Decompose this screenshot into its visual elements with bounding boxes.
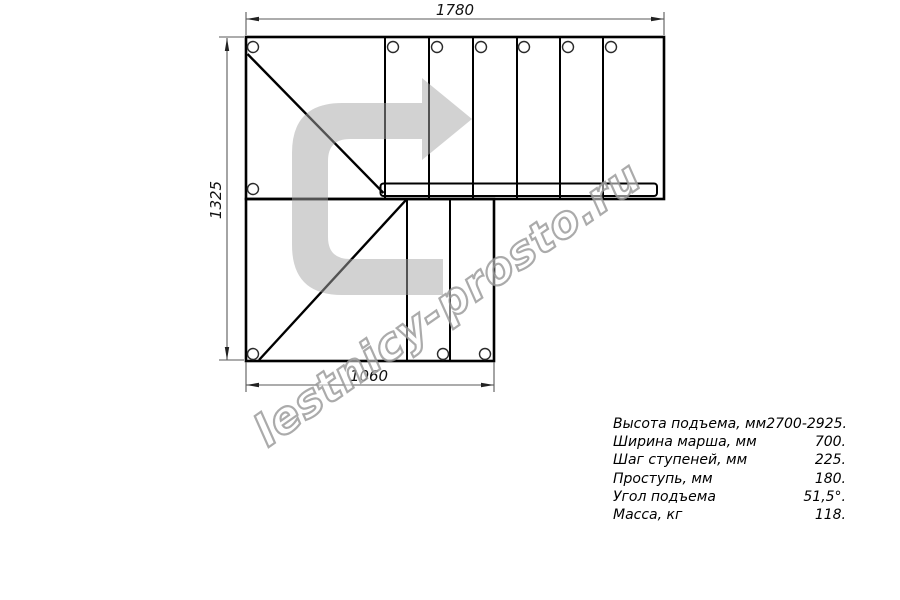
spec-value: 2700-2925. <box>766 415 847 433</box>
post-circle <box>606 42 617 53</box>
post-circle <box>432 42 443 53</box>
spec-value: 118. <box>815 506 846 524</box>
specs-table: Высота подъема, мм 2700-2925. Ширина мар… <box>613 415 846 524</box>
spec-row: Проступь, мм 180. <box>613 470 846 488</box>
post-circle <box>388 42 399 53</box>
dim-label-top-width: 1780 <box>436 1 474 19</box>
spec-value: 225. <box>815 451 846 469</box>
post-circle <box>563 42 574 53</box>
dim-arrow <box>246 383 259 387</box>
spec-value: 700. <box>815 433 846 451</box>
dim-arrow <box>225 347 229 360</box>
spec-label: Масса, кг <box>613 506 682 524</box>
spec-value: 51,5°. <box>803 488 846 506</box>
u-turn-right-arrow-icon <box>292 78 472 295</box>
spec-row: Ширина марша, мм 700. <box>613 433 846 451</box>
dim-arrow <box>225 38 229 51</box>
spec-label: Шаг ступеней, мм <box>613 451 747 469</box>
spec-row: Масса, кг 118. <box>613 506 846 524</box>
spec-label: Ширина марша, мм <box>613 433 757 451</box>
spec-label: Высота подъема, мм <box>613 415 766 433</box>
spec-row: Угол подъема 51,5°. <box>613 488 846 506</box>
post-circle <box>476 42 487 53</box>
post-circle <box>248 349 259 360</box>
dim-arrow <box>651 17 664 21</box>
spec-label: Проступь, мм <box>613 470 713 488</box>
dim-label-left-height: 1325 <box>207 181 225 219</box>
post-circle <box>438 349 449 360</box>
dim-arrow <box>481 383 494 387</box>
post-circle <box>248 184 259 195</box>
post-circle <box>248 42 259 53</box>
dim-arrow <box>246 17 259 21</box>
spec-value: 180. <box>815 470 846 488</box>
spec-label: Угол подъема <box>613 488 716 506</box>
spec-row: Высота подъема, мм 2700-2925. <box>613 415 846 433</box>
spec-row: Шаг ступеней, мм 225. <box>613 451 846 469</box>
post-circle <box>519 42 530 53</box>
post-circle <box>480 349 491 360</box>
stair-drawing-page: 1780 1325 1060 lestnicy-prosto.ru Высота… <box>0 0 900 600</box>
